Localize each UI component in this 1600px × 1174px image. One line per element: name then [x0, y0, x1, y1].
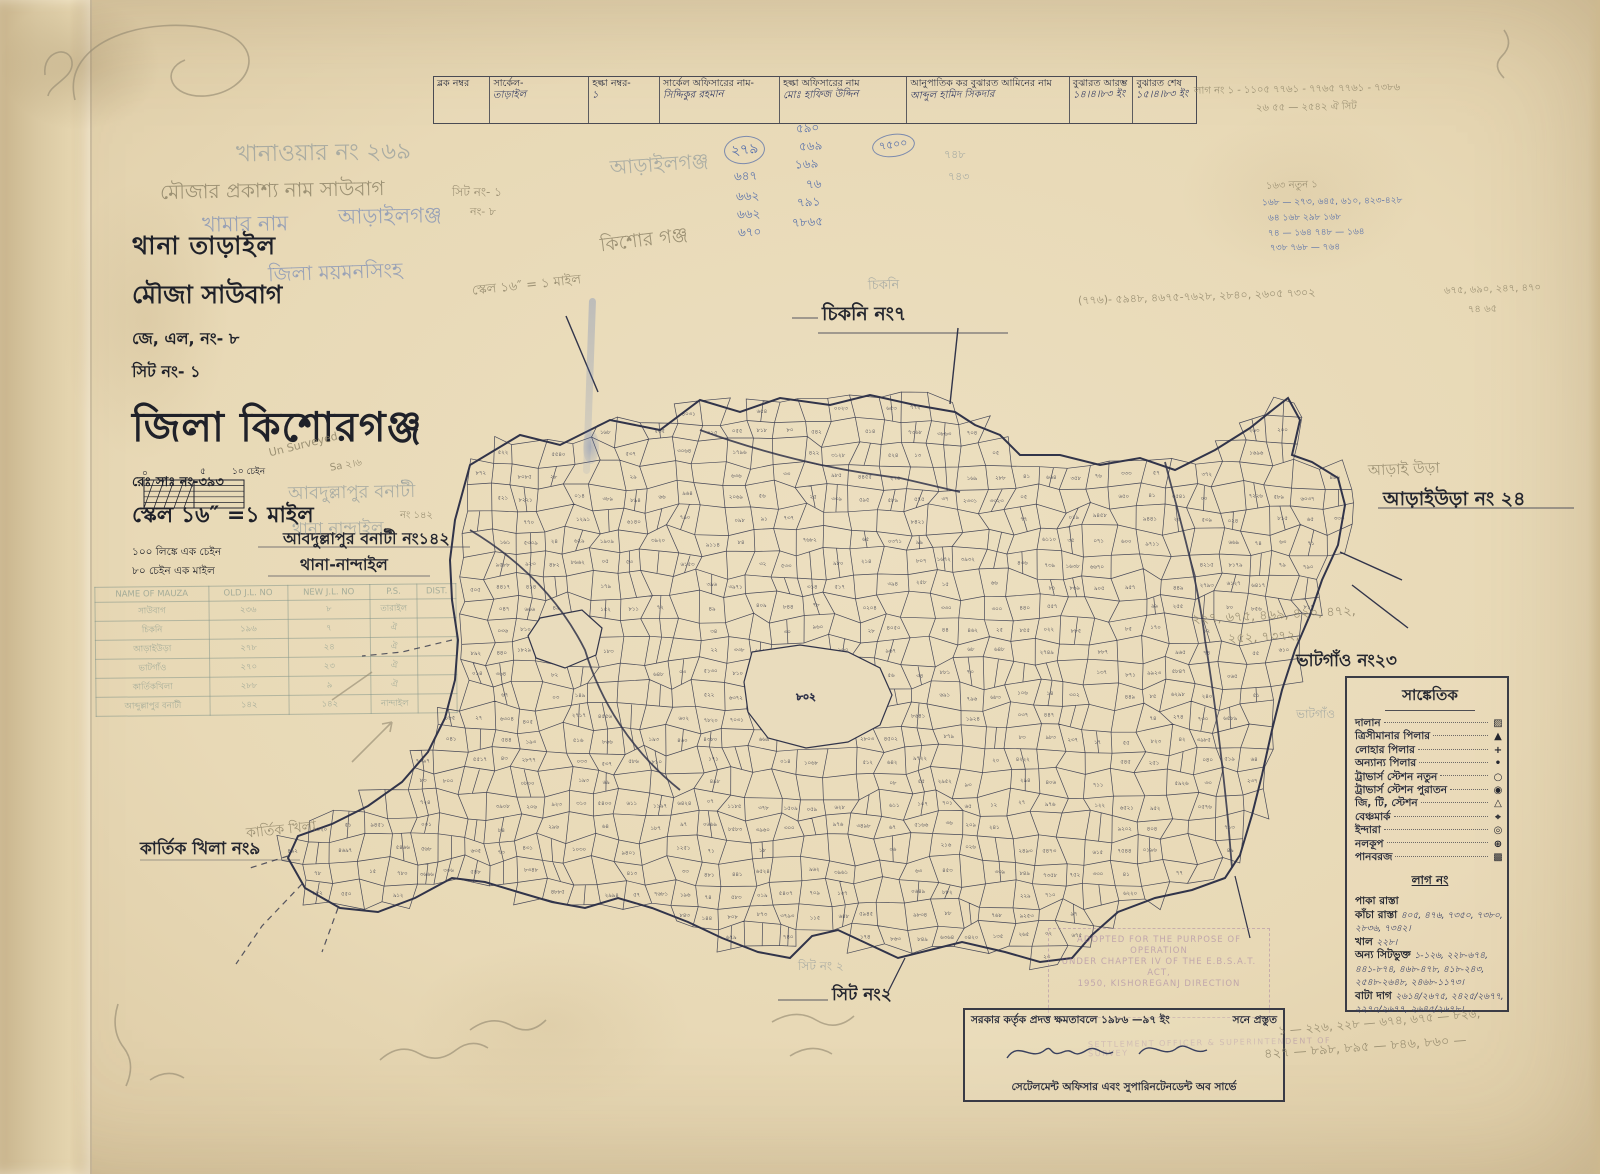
svg-text:৫৬৫: ৫৬৫ — [654, 429, 665, 435]
annotation-note: কার্তিক খিলা — [245, 814, 317, 845]
svg-text:০৪০: ০৪০ — [1202, 757, 1213, 763]
mauza-table-cell: ১৯৬ — [209, 619, 288, 639]
svg-text:০৪১: ০৪১ — [446, 737, 457, 743]
svg-text:১৯৬: ১৯৬ — [680, 892, 691, 898]
svg-text:৩৯০৮: ৩৯০৮ — [496, 804, 511, 810]
header-table-cell: হল্কা নম্বর-১ — [588, 77, 659, 123]
legend-symbol-icon: ◉ — [1491, 784, 1505, 797]
mauza-table-cell: ২৩৬ — [209, 600, 288, 620]
svg-text:১৮৭: ১৮৭ — [651, 826, 662, 832]
svg-text:১৫০৯: ১৫০৯ — [784, 806, 798, 812]
svg-text:৪২২: ৪২২ — [809, 451, 820, 457]
lag-item-label: অন্য সিটভুক্ত — [1355, 949, 1414, 961]
header-cell-label: হল্কা নম্বর- — [592, 78, 656, 89]
svg-text:২৭৪৯: ২৭৪৯ — [1040, 650, 1054, 656]
svg-text:৮৯২: ৮৯২ — [471, 651, 482, 657]
prepared-under-authority-text: সরকার কর্তৃক প্রদত্ত ক্ষমতাবলে ১৯৮৬ —৯৭ … — [971, 1013, 1170, 1030]
svg-text:২৯: ২৯ — [630, 475, 637, 481]
torn-left-edge — [0, 0, 92, 1174]
svg-text:১৮২: ১৮২ — [312, 891, 323, 897]
svg-text:৬২৯: ৬২৯ — [574, 539, 585, 545]
svg-text:৯৯: ৯৯ — [916, 540, 923, 546]
mauza-table-cell — [417, 599, 456, 618]
svg-text:৩৯৪: ৩৯৪ — [888, 582, 899, 588]
svg-text:৯৭: ৯৭ — [1070, 912, 1077, 918]
header-cell-label: বুঝারত শেষ — [1136, 78, 1193, 89]
legend-symbol-icon: ▲ — [1491, 730, 1505, 743]
svg-text:৯২০২: ৯২০২ — [1118, 827, 1132, 833]
svg-text:২০৯: ২০৯ — [965, 822, 976, 828]
svg-text:৫২২: ৫২২ — [704, 693, 715, 699]
svg-text:৪৮৮৫: ৪৮৮৫ — [551, 890, 565, 896]
svg-text:৩৩৯: ৩৩৯ — [995, 870, 1006, 876]
svg-text:০৮: ০৮ — [889, 781, 897, 787]
legend-dotted-leader — [1384, 722, 1488, 723]
svg-text:১২৯১: ১২৯১ — [576, 517, 590, 523]
svg-text:৬৩: ৬৩ — [915, 869, 923, 875]
svg-text:৮৭২: ৮৭২ — [476, 470, 487, 476]
svg-text:২০৬৯: ২০৬৯ — [729, 494, 743, 500]
mauza-table-cell — [418, 637, 457, 656]
svg-text:৬৮৩: ৬৮৩ — [990, 695, 1001, 701]
adoption-stamp: ADOPTED FOR THE PURPOSE OF OPERATIONUNDE… — [1048, 928, 1270, 1018]
svg-text:৯৬০: ৯৬০ — [838, 647, 849, 653]
svg-text:৬৭: ৬৭ — [501, 693, 508, 699]
svg-text:৫৭৫: ৫৭৫ — [914, 497, 925, 503]
legend-dotted-leader — [1384, 829, 1488, 830]
svg-text:৪৪৬: ৪৪৬ — [1329, 475, 1340, 481]
svg-text:৮১: ৮১ — [1049, 586, 1056, 592]
svg-text:৬৫০: ৬৫০ — [1118, 494, 1129, 500]
svg-text:৯৮৩: ৯৮৩ — [1045, 735, 1056, 741]
scale-note-chains: ৮০ চেইন এক মাইল — [132, 564, 462, 581]
header-cell-value: ১ — [592, 88, 656, 100]
svg-text:৩০০: ৩০০ — [784, 826, 795, 832]
svg-text:৬৬: ৬৬ — [658, 495, 666, 501]
svg-text:৬৩৭২: ৬৩৭২ — [729, 695, 743, 701]
svg-text:৯২৫৩: ৯২৫৩ — [1020, 913, 1035, 919]
svg-text:৩৩০: ৩৩০ — [1093, 872, 1104, 878]
svg-text:৩৭: ৩৭ — [941, 497, 948, 503]
svg-text:৩৪: ৩৪ — [916, 673, 923, 679]
svg-text:০০১: ০০১ — [421, 822, 432, 828]
lag-item: অন্য সিটভুক্ত ১-১২৬, ২২৮-৬৭৪, ৪৪১-৮৭৪, ৪… — [1355, 949, 1505, 990]
legend-item-label: জি, টি, স্টেশন — [1355, 797, 1418, 810]
svg-text:৮৭১: ৮৭১ — [1125, 672, 1136, 678]
svg-text:০৬: ০৬ — [889, 847, 897, 853]
svg-text:৩৯৩২: ৩৯৩২ — [961, 557, 975, 563]
svg-text:৩১৪: ৩১৪ — [807, 585, 818, 591]
svg-text:২০৬: ২০৬ — [526, 805, 537, 811]
district-title: জিলা কিশোরগঞ্জ — [132, 396, 462, 465]
svg-text:৪৪১৭: ৪৪১৭ — [496, 585, 510, 591]
svg-text:১৯২৪: ১৯২৪ — [966, 716, 980, 722]
svg-text:৫৩০৯: ৫৩০৯ — [524, 541, 538, 547]
header-cell-value: আব্দুল হামিদ সিকদার — [910, 87, 1066, 101]
svg-text:৯৭৬: ৯৭৬ — [833, 822, 844, 828]
svg-text:৫৫৪০: ৫৫৪০ — [551, 452, 565, 458]
svg-text:৬৫: ৬৫ — [862, 537, 869, 543]
legend-item-label: ইন্দারা — [1355, 824, 1381, 837]
svg-text:৬২৮: ৬২৮ — [835, 805, 846, 811]
svg-text:০৩: ০৩ — [552, 695, 560, 701]
svg-text:০৬৪৯: ০৬৪৯ — [911, 889, 925, 895]
svg-text:৬৪৮: ৬৪৮ — [839, 914, 850, 920]
svg-text:৪২২২: ৪২২২ — [1016, 757, 1030, 763]
lag-section-title: লাগ নং — [1355, 872, 1505, 892]
svg-text:৯১: ৯১ — [761, 517, 768, 523]
svg-text:৬৬৭০: ৬৬৭০ — [1090, 565, 1104, 571]
svg-text:৪৩১: ৪৩১ — [522, 846, 533, 852]
svg-text:৬৬৯: ৬৬৯ — [759, 737, 770, 743]
svg-text:২৮০৩: ২৮০৩ — [860, 737, 875, 743]
svg-text:৩৩: ৩৩ — [682, 869, 690, 875]
svg-text:৬০০: ৬০০ — [1121, 539, 1132, 545]
svg-text:৭৯: ৭৯ — [1279, 562, 1286, 568]
svg-text:০৮০০: ০৮০০ — [520, 781, 534, 787]
svg-text:৫৯৫: ৫৯৫ — [859, 497, 870, 503]
svg-text:৮৬৬: ৮৬৬ — [602, 740, 613, 746]
svg-text:৫৪৭৩: ৫৪৭৩ — [1042, 848, 1057, 854]
legend-item: ত্রিসীমানার পিলার▲ — [1355, 730, 1505, 743]
svg-text:২৩৭: ২৩৭ — [1247, 779, 1258, 785]
legend-item: দালান▨ — [1355, 717, 1505, 730]
svg-text:২৯৪: ২৯৪ — [1020, 778, 1031, 784]
svg-text:১৬১: ১৬১ — [500, 540, 511, 546]
svg-text:৮৪: ৮৪ — [498, 828, 505, 834]
lag-item: খাল ২২৮। — [1355, 936, 1505, 950]
svg-text:১৬৩৮: ১৬৩৮ — [1066, 564, 1081, 570]
svg-text:০৩৬: ০৩৬ — [498, 629, 509, 635]
svg-text:৮১১: ৮১১ — [628, 607, 639, 613]
annotation-note: স্কেল ১৬″ = ১ মাইল — [471, 270, 582, 302]
prepared-year-text: সনে প্রস্তুত — [1233, 1013, 1277, 1030]
svg-text:৪৪০: ৪৪০ — [496, 651, 507, 657]
svg-text:৬৬৬: ৬৬৬ — [524, 607, 535, 613]
svg-text:৮৪৯: ৮৪৯ — [1019, 871, 1030, 877]
svg-text:২৯৫২: ২৯৫২ — [938, 779, 952, 785]
svg-text:১৫: ১৫ — [942, 582, 949, 588]
svg-text:২৭৫: ২৭৫ — [890, 476, 901, 482]
svg-text:০৫৪১: ০৫৪১ — [1172, 494, 1186, 500]
legend-symbol-icon: ▨ — [1491, 717, 1505, 730]
svg-text:১৬৮: ১৬৮ — [600, 430, 611, 436]
legend-item-label: নলকূপ — [1355, 838, 1384, 851]
mauza-table-cell: ১৪২ — [210, 695, 289, 715]
legend-item-label: লোহার পিলার — [1355, 744, 1415, 757]
legend-dotted-leader — [1419, 762, 1488, 763]
svg-text:১০৩০: ১০৩০ — [572, 847, 586, 853]
mauza-table-cell: ঐ — [370, 618, 418, 637]
header-cell-value: ১৫।৪।৮৩ ইং — [1136, 88, 1193, 100]
svg-text:৬৩৬৪: ৬৩৬৪ — [940, 935, 954, 941]
mauza-table-cell — [418, 618, 457, 637]
svg-text:২৮: ২৮ — [550, 474, 558, 480]
neighbor-label-araiura: আড়াইউড়া নং ২৪ — [1383, 485, 1525, 517]
svg-text:৫৪০০: ৫৪০০ — [598, 801, 612, 807]
svg-text:০৫: ০৫ — [602, 559, 609, 565]
lag-item: পাকা রাস্তা — [1355, 895, 1505, 909]
svg-text:৫৪৫: ৫৪৫ — [1120, 760, 1131, 766]
svg-text:১৯৩: ১৯৩ — [578, 778, 589, 784]
svg-text:৮৬৪১: ৮৬৪১ — [911, 714, 925, 720]
svg-text:৪০৯: ৪০৯ — [756, 603, 767, 609]
svg-text:২৮: ২৮ — [868, 628, 876, 634]
svg-text:০৫৯: ০৫৯ — [807, 807, 818, 813]
svg-text:৭৯০: ৭৯০ — [680, 515, 691, 521]
lag-item-label: বাটা দাগ — [1355, 990, 1395, 1002]
svg-text:৫২২: ৫২২ — [498, 450, 509, 456]
svg-text:৬৫৮৯: ৬৫৮৯ — [1223, 716, 1237, 722]
annotation-note: ১৬৩ নতুন ১ — [1266, 177, 1318, 196]
header-cell-label: বুঝারত আরম্ভ — [1073, 78, 1130, 89]
legend-symbol-icon: ◎ — [1491, 824, 1505, 837]
svg-text:৫৩৩: ৫৩৩ — [781, 563, 792, 569]
svg-text:৮৪৪: ৮৪৪ — [783, 605, 794, 611]
svg-text:৪৯: ৪৯ — [709, 606, 716, 612]
svg-text:৪১: ৪১ — [1123, 872, 1130, 878]
svg-text:৪৪৭: ৪৪৭ — [1044, 713, 1055, 719]
svg-text:৪০৫০: ৪০৫০ — [886, 626, 900, 632]
svg-text:১১৫: ১১৫ — [810, 916, 821, 922]
paper-stain — [410, 940, 690, 1110]
svg-text:৪৪৫৫: ৪৪৫৫ — [858, 475, 872, 481]
annotation-note: চিকনি — [868, 275, 900, 297]
svg-text:০১৪: ০১৪ — [472, 671, 483, 677]
svg-text:৫১৩০: ৫১৩০ — [703, 669, 717, 675]
svg-text:৬৪: ৬৪ — [602, 824, 609, 830]
svg-text:৮৪৯: ৮৪৯ — [917, 937, 928, 943]
legend-symbol-icon: ○ — [1491, 771, 1505, 784]
adoption-stamp-line: UNDER CHAPTER IV OF THE E.B.S.A.T. ACT, — [1053, 957, 1265, 979]
svg-text:১৬৭২: ১৬৭২ — [937, 557, 951, 563]
legend-item: জি, টি, স্টেশন△ — [1355, 797, 1505, 810]
svg-text:৮৬৯: ৮৬৯ — [1069, 585, 1080, 591]
svg-text:৪৮২: ৪৮২ — [549, 563, 560, 569]
svg-text:৫১৬৬: ৫১৬৬ — [914, 822, 929, 828]
svg-text:৫৮৯: ৫৮৯ — [888, 498, 899, 504]
svg-text:৩৩৩: ৩৩৩ — [1121, 471, 1132, 477]
svg-text:১৩৭: ১৩৭ — [1097, 670, 1108, 676]
legend-symbol-icon: ▩ — [1491, 851, 1505, 864]
svg-text:৭৭: ৭৭ — [1176, 870, 1183, 876]
mauza-table-header: OLD J.L. NO — [208, 585, 287, 601]
svg-text:০৯৮: ০৯৮ — [734, 518, 745, 524]
svg-text:০১৯৬: ০১৯৬ — [1143, 847, 1158, 853]
svg-text:২৪: ২৪ — [551, 539, 558, 545]
svg-text:৯৫২: ৯৫২ — [1150, 806, 1161, 812]
svg-text:৩৪: ৩৪ — [710, 629, 717, 635]
svg-text:৮৩: ৮৩ — [419, 778, 426, 784]
annotation-note: ৬৪৭ — [734, 168, 758, 189]
svg-text:৩৬: ৩৬ — [946, 820, 954, 826]
svg-text:৮১৫: ৮১৫ — [1277, 516, 1288, 522]
legend-item-list: দালান▨ত্রিসীমানার পিলার▲লোহার পিলার+অন্য… — [1355, 717, 1505, 864]
svg-text:৭৯০: ৭৯০ — [1303, 565, 1314, 571]
svg-text:১৮৫: ১৮৫ — [445, 716, 456, 722]
mauza-table-header: NAME OF MAUZA — [95, 586, 209, 602]
svg-text:৫১: ৫১ — [345, 823, 352, 829]
svg-text:৩৩: ৩৩ — [783, 472, 791, 478]
legend-item-label: ত্রিসীমানার পিলার — [1355, 730, 1430, 743]
svg-text:৯৭১১: ৯৭১১ — [1145, 542, 1159, 548]
svg-text:৩৫৮: ৩৫৮ — [1070, 476, 1081, 482]
svg-text:১১৮৫: ১১৮৫ — [727, 804, 741, 810]
svg-text:৬১৪০: ৬১৪০ — [627, 519, 641, 525]
svg-text:০৫৫: ০৫৫ — [732, 429, 743, 435]
svg-text:০০: ০০ — [1200, 496, 1207, 502]
svg-text:২৭৪: ২৭৪ — [1173, 715, 1184, 721]
svg-text:৯১১৪: ৯১১৪ — [706, 543, 720, 549]
svg-text:২৪১: ২৪১ — [989, 825, 1000, 831]
svg-text:৩৫: ৩৫ — [1067, 538, 1074, 544]
svg-text:৫৮৪৭: ৫৮৪৭ — [1172, 669, 1186, 675]
svg-text:৪৫৩: ৪৫৩ — [942, 868, 953, 874]
corner-stain — [0, 0, 160, 130]
svg-text:৯৯: ৯৯ — [1151, 604, 1158, 610]
lag-item-label: কাঁচা রাস্তা — [1355, 909, 1401, 921]
svg-text:৯৬২: ৯৬২ — [809, 867, 820, 873]
annotation-note: সিট নং ২ — [798, 958, 844, 978]
svg-text:১৯০৯: ১৯০৯ — [600, 539, 614, 545]
svg-text:১৯৩: ১৯৩ — [526, 739, 537, 745]
svg-text:১৭০: ১৭০ — [1150, 625, 1161, 631]
svg-text:৬৯: ৬৯ — [603, 780, 610, 786]
svg-text:২৭: ২৭ — [475, 716, 482, 722]
neighbor-label-bhatgaon: ভাটগাঁও নং২৩ — [1296, 648, 1397, 676]
svg-text:৬১১: ৬১১ — [626, 801, 637, 807]
annotation-note: ৭৯১ — [796, 193, 820, 214]
svg-text:৭৬৮২: ৭৬৮২ — [803, 538, 817, 544]
annotation-note: খামার নাম — [202, 207, 289, 243]
svg-text:৮০: ৮০ — [786, 428, 793, 434]
svg-text:২১৬: ২১৬ — [941, 843, 952, 849]
svg-text:৭৬৮: ৭৬৮ — [991, 913, 1002, 919]
legend-symbol-icon: ⊕ — [1491, 838, 1505, 851]
adoption-stamp-line: ADOPTED FOR THE PURPOSE OF OPERATION — [1053, 935, 1265, 957]
ink-smear-blob — [583, 430, 599, 464]
svg-text:৯৭৬: ৯৭৬ — [1045, 802, 1056, 808]
legend-dotted-leader — [1395, 856, 1488, 857]
svg-text:৮২: ৮২ — [551, 673, 558, 679]
legend-symbol-icon: ⌖ — [1491, 811, 1505, 824]
svg-text:৬৭৯: ৬৭৯ — [726, 935, 737, 941]
svg-text:৩৭৯৩: ৩৭৯৩ — [780, 914, 795, 920]
header-cell-value: সিদ্দিকুর রহমান — [663, 88, 776, 101]
svg-text:০৩৩: ০৩৩ — [577, 759, 588, 765]
svg-text:২২৯: ২২৯ — [1020, 893, 1031, 899]
svg-text:১৭৪: ১৭৪ — [860, 935, 871, 941]
svg-text:৬৫: ৬৫ — [965, 804, 972, 810]
svg-text:২৪০: ২৪০ — [1202, 694, 1213, 700]
svg-text:৭১: ৭১ — [1307, 541, 1314, 547]
svg-text:২৮৭৭: ২৮৭৭ — [522, 758, 536, 764]
svg-text:১০৭: ১০৭ — [917, 802, 928, 808]
svg-text:৮৬৩: ৮৬৩ — [890, 936, 901, 942]
blank-plot-number: ৮০২ — [796, 692, 816, 703]
svg-text:২০: ২০ — [992, 758, 999, 764]
legend-title: সাঙ্কেতিক — [1385, 684, 1475, 711]
mauza-table-cell: ভাটগাঁও — [96, 658, 210, 678]
svg-text:৪১: ৪১ — [1023, 474, 1030, 480]
svg-text:৪০৬: ৪০৬ — [1045, 780, 1056, 786]
svg-text:১৫: ১৫ — [369, 869, 376, 875]
header-table-cell: আনুপাতিক কর বুঝারত আমিনের নামআব্দুল হামি… — [906, 77, 1069, 123]
svg-text:২৬৫: ২৬৫ — [1019, 932, 1030, 938]
svg-text:৬৪: ৬৪ — [1251, 757, 1258, 763]
svg-text:৩৮৯: ৩৮৯ — [603, 496, 614, 502]
svg-text:০৭: ০৭ — [707, 799, 714, 805]
svg-text:৭৮২০: ৭৮২০ — [704, 718, 718, 724]
svg-text:২১৪: ২১৪ — [861, 559, 872, 565]
svg-text:৪৮১: ৪৮১ — [704, 873, 715, 879]
annotation-note: ৬৭০ — [738, 224, 762, 245]
legend-dotted-leader — [1421, 802, 1488, 803]
svg-text:৩৯৮৫: ৩৯৮৫ — [1197, 738, 1211, 744]
annotation-note: আবদুল্লাপুর বনাটী — [288, 477, 416, 510]
svg-text:৯৬৪: ৯৬৪ — [682, 491, 693, 497]
svg-text:১৪৯: ১৪৯ — [575, 693, 586, 699]
svg-text:৪১: ৪১ — [1148, 493, 1155, 499]
svg-text:৮৩: ৮৩ — [1019, 735, 1026, 741]
svg-text:৭২৪: ৭২৪ — [420, 800, 431, 806]
svg-text:২৯৯৪: ২৯৯৪ — [605, 893, 619, 899]
mauza-table-header: P.S. — [370, 584, 418, 599]
svg-text:৭৮০: ৭৮০ — [397, 871, 408, 877]
svg-text:৭৩৭: ৭৩৭ — [784, 516, 795, 522]
svg-text:৫৫: ৫৫ — [1252, 651, 1259, 657]
lag-item: কাঁচা রাস্তা ৪০৫, ৪৭৬, ৭৩৫০, ৭৩৮০, ২৮৩৬,… — [1355, 909, 1505, 936]
svg-text:৩০: ৩০ — [784, 630, 791, 636]
svg-text:৯২৩: ৯২৩ — [525, 562, 536, 568]
svg-text:৯২৩: ৯২৩ — [551, 802, 562, 808]
svg-text:৪৬২: ৪৬২ — [967, 628, 978, 634]
mauza-table-cell: ৯ — [288, 676, 370, 696]
svg-text:৬৩: ৬৩ — [1279, 540, 1287, 546]
svg-text:৫৫৭: ৫৫৭ — [1047, 604, 1058, 610]
svg-text:৭৭০: ৭৭০ — [523, 520, 534, 526]
mauza-table-cell: সাউবাগ — [95, 601, 209, 621]
svg-text:০১৪: ০১৪ — [780, 759, 791, 765]
svg-text:৩৭২: ৩৭২ — [1201, 472, 1212, 478]
svg-text:৮৪২১: ৮৪২১ — [911, 520, 925, 526]
svg-text:৬৬৯: ৬৬৯ — [1229, 540, 1240, 546]
svg-text:৩২: ৩২ — [759, 562, 766, 568]
svg-text:৬৪২৪: ৬৪২৪ — [677, 801, 691, 807]
svg-text:৩৩: ৩৩ — [1204, 781, 1212, 787]
annotation-note: ৭৮৬৫ — [791, 213, 823, 235]
svg-text:৬১১০: ৬১১০ — [1042, 537, 1056, 543]
svg-text:১১৯৭: ১১৯৭ — [653, 803, 667, 809]
svg-text:৭১০: ৭১০ — [1045, 893, 1056, 899]
svg-text:৫০৫: ৫০৫ — [470, 587, 481, 593]
svg-text:৭৮: ৭৮ — [314, 871, 322, 877]
svg-text:৫৬: ৫৬ — [887, 673, 894, 679]
svg-text:৩৯৬০: ৩৯৬০ — [756, 827, 770, 833]
svg-text:৪২: ৪২ — [1178, 737, 1185, 743]
svg-text:৮৮: ৮৮ — [944, 911, 951, 917]
svg-text:৩৮৬৩: ৩৮৬৩ — [937, 432, 952, 438]
svg-text:৮১০: ৮১০ — [651, 759, 662, 765]
header-table-cell: বুঝারত শেষ১৫।৪।৮৩ ইং — [1132, 77, 1196, 123]
mauza-table-cell: আড়াইউড়া — [95, 639, 209, 659]
boundary-extension-lines — [566, 316, 1408, 992]
annotation-note: ৭৩৮ ৭৬৮ — ৭৬৪ — [1270, 239, 1340, 255]
legend-item-label: ট্রাভার্স স্টেশন পুরাতন — [1355, 784, 1447, 797]
svg-text:৩৯৬১: ৩৯৬১ — [834, 870, 848, 876]
annotation-note: সিট নং- ১ — [452, 184, 502, 204]
mauza-table-cell: ২৭০ — [209, 657, 288, 677]
